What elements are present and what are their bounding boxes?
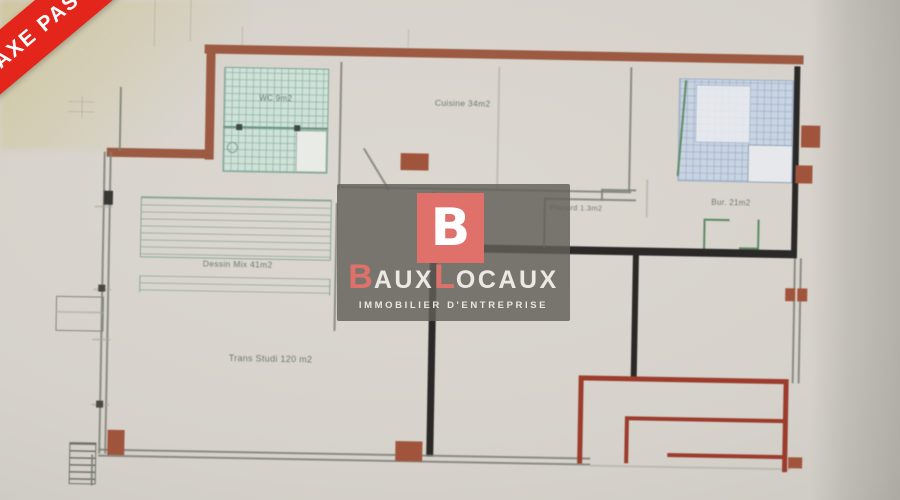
door-mark	[98, 285, 105, 292]
brand-letter: L	[434, 258, 456, 296]
door-swing	[739, 247, 759, 249]
bureau-label: Bur. 21m2	[696, 197, 766, 207]
wall-divider	[338, 62, 342, 190]
sketch-line	[190, 0, 192, 41]
red-outline-line	[625, 416, 785, 423]
brand-letter: B	[348, 258, 374, 296]
pillar-block	[107, 430, 124, 455]
tick-mark	[95, 205, 113, 207]
red-outline-line	[667, 453, 784, 459]
atelier-stripes	[140, 196, 332, 260]
pillar-block	[395, 441, 422, 461]
wall-mid-vertical	[631, 255, 639, 379]
radiator-block	[400, 153, 428, 171]
wc-hinge	[294, 125, 300, 131]
wall-left-return	[107, 148, 209, 159]
dimension-line	[119, 87, 122, 151]
atelier-label: Dessin Mix 41m2	[163, 258, 313, 271]
wc-hinge	[236, 124, 242, 130]
pillar-block	[797, 288, 807, 301]
main-room-label: Trans Studi 120 m2	[198, 352, 343, 365]
door-swing	[704, 219, 730, 221]
door-mark	[96, 401, 103, 408]
tick-mark	[92, 338, 110, 340]
pillar-block	[788, 457, 802, 468]
wall-top	[205, 44, 804, 64]
kitchen-divider	[496, 67, 500, 189]
brand-wordmark: BAUXLOCAUX	[337, 260, 570, 301]
bathroom-inner-room	[747, 144, 793, 183]
kitchen-label: Cuisine 34m2	[403, 97, 523, 109]
annex-room	[55, 296, 104, 332]
bathroom-fixture	[695, 84, 751, 143]
brand-monogram-square: B	[417, 193, 484, 263]
pillar-block	[785, 288, 795, 301]
watermark-logo: B BAUXLOCAUX IMMOBILIER D'ENTREPRISE	[337, 184, 570, 321]
leader-line	[646, 180, 648, 218]
dimension-mark	[81, 96, 82, 118]
tick-mark	[242, 26, 243, 46]
red-outline-line	[577, 375, 584, 463]
brand-letters: AUX	[374, 266, 434, 294]
paper-edge-shadow	[810, 0, 900, 500]
kitchen-right-wall	[628, 67, 632, 191]
door-swing	[757, 220, 760, 250]
sketch-line	[154, 0, 156, 47]
brand-tagline: IMMOBILIER D'ENTREPRISE	[337, 300, 570, 311]
tick-mark	[408, 29, 409, 47]
closet-wall	[601, 189, 603, 201]
brand-letters: OCAUX	[456, 266, 559, 294]
red-outline-line	[624, 416, 629, 463]
wc-fixture	[295, 130, 327, 173]
floor-plan-photo: WC 9m2 Cuisine 34m2 Bur. 21m2 Placard 1.…	[0, 0, 900, 500]
wall-right-line	[792, 258, 796, 383]
red-outline-line	[579, 375, 788, 384]
wall-right-line	[798, 258, 802, 383]
wall-left-upper	[205, 45, 216, 160]
atelier-stripes	[139, 275, 330, 295]
door-mark	[104, 191, 113, 205]
door-swing	[703, 219, 706, 249]
wall-bottom-faint	[590, 465, 790, 470]
brand-monogram: B	[431, 195, 471, 261]
wc-label: WC 9m2	[241, 93, 311, 103]
